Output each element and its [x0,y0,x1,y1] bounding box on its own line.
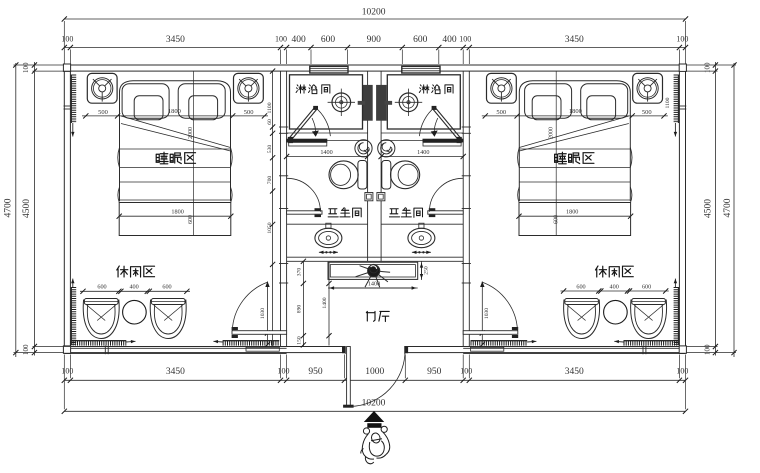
svg-text:500: 500 [98,109,108,116]
svg-text:500: 500 [496,109,506,116]
svg-text:100: 100 [703,344,711,355]
svg-text:400: 400 [442,35,457,45]
svg-text:950: 950 [427,367,442,377]
svg-text:500: 500 [244,109,254,116]
svg-text:3450: 3450 [565,35,584,45]
svg-text:4500: 4500 [22,199,32,218]
svg-text:600: 600 [162,284,171,291]
svg-text:600: 600 [642,283,651,290]
svg-text:60: 60 [267,119,273,125]
svg-text:1400: 1400 [320,149,332,156]
svg-text:100: 100 [275,35,287,44]
svg-text:890: 890 [296,305,302,314]
svg-text:950: 950 [308,367,323,377]
svg-text:1400: 1400 [417,149,429,156]
svg-text:3450: 3450 [166,35,185,45]
svg-text:370: 370 [296,268,302,277]
svg-text:4500: 4500 [704,199,714,218]
svg-text:700: 700 [267,176,273,185]
svg-text:4700: 4700 [723,198,733,217]
svg-text:3450: 3450 [565,367,584,377]
svg-text:100: 100 [459,35,471,44]
svg-text:400: 400 [291,35,306,45]
svg-text:100: 100 [61,35,73,44]
svg-text:1100: 1100 [267,102,273,113]
svg-text:1400: 1400 [322,297,328,308]
svg-text:3450: 3450 [166,367,185,377]
svg-text:400: 400 [129,284,138,291]
svg-text:1050: 1050 [267,222,273,233]
svg-text:1030: 1030 [260,308,266,319]
svg-text:100: 100 [676,367,688,376]
svg-text:1100: 1100 [665,97,671,108]
svg-text:10200: 10200 [362,7,386,17]
svg-text:100: 100 [22,344,30,355]
svg-text:100: 100 [61,367,73,376]
svg-text:600: 600 [97,284,106,291]
svg-text:1030: 1030 [484,308,490,319]
svg-text:1000: 1000 [365,367,384,377]
svg-text:150: 150 [296,336,302,345]
svg-text:2000: 2000 [548,127,554,139]
svg-text:1800: 1800 [171,209,183,216]
svg-text:1800: 1800 [566,209,578,216]
svg-text:600: 600 [188,215,194,224]
svg-text:600: 600 [413,35,428,45]
svg-text:500: 500 [642,109,652,116]
svg-text:600: 600 [321,35,336,45]
svg-text:600: 600 [576,283,585,290]
svg-text:100: 100 [278,367,290,376]
svg-text:900: 900 [367,35,382,45]
svg-text:250: 250 [423,266,429,275]
svg-text:100: 100 [676,35,688,44]
svg-text:400: 400 [610,283,619,290]
svg-text:4700: 4700 [3,198,13,217]
svg-text:2000: 2000 [188,127,194,139]
svg-text:10200: 10200 [362,399,386,409]
svg-text:530: 530 [267,145,273,154]
svg-text:100: 100 [460,367,472,376]
svg-text:100: 100 [22,62,30,73]
